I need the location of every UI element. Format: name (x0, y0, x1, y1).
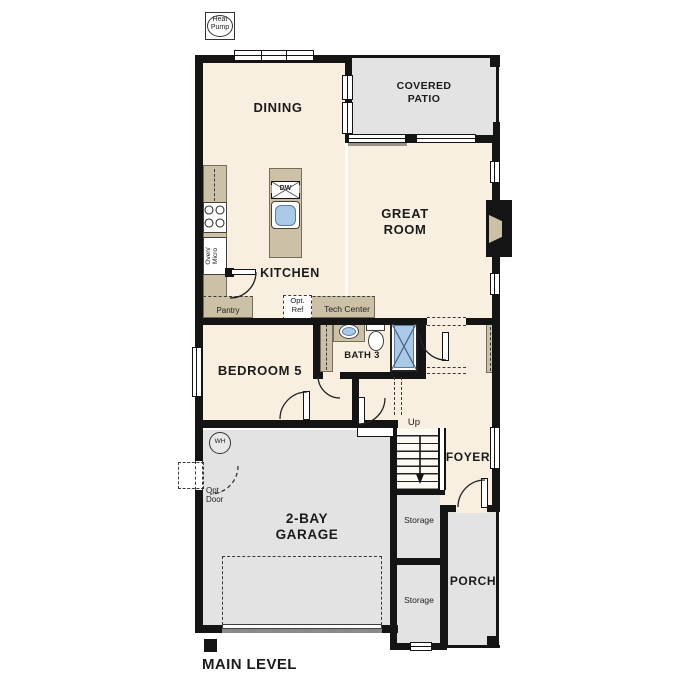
opt-door-label: Opt.Door (206, 486, 236, 504)
garage-label: 2-BAYGARAGE (267, 511, 347, 543)
garage-entry-step (357, 427, 394, 437)
great-room-label: GREATROOM (374, 206, 436, 237)
wall-garage-right (390, 422, 397, 650)
wall-bath-bottom-b (340, 372, 426, 379)
closet-opening-bottom (427, 367, 466, 374)
closet-opening-top (427, 317, 466, 326)
dining-label: DINING (238, 100, 318, 116)
opt-ref-label: Opt.Ref (283, 297, 312, 314)
foyer-closet-door (442, 332, 449, 361)
bath-3-label: BATH 3 (338, 350, 386, 361)
great-room-window-1 (490, 161, 500, 183)
storage-upper-label: Storage (400, 516, 438, 526)
stair-treads (397, 429, 438, 489)
garage-door-swing-zone (222, 556, 382, 625)
wall-bath-bottom-a (313, 372, 323, 379)
oven-micro-label: Oven/Micro (205, 238, 225, 274)
heat-pump-label: HeatPump (205, 16, 235, 32)
wall-closet-left (418, 318, 426, 379)
floor-plan: Oven/Micro DW Opt.Ref (0, 0, 687, 687)
kitchen-label: KITCHEN (250, 266, 330, 281)
dining-patio-window-2 (342, 102, 353, 134)
title-square (204, 639, 217, 652)
porch-post (487, 636, 498, 647)
storage-vent (410, 642, 432, 651)
garage-entry-door (358, 397, 365, 425)
opt-door-zone (178, 462, 204, 489)
bedroom-door (303, 391, 310, 420)
wall-stairs-bottom (390, 488, 445, 495)
slider-track (348, 143, 407, 146)
covered-patio-label: COVEREDPATIO (384, 80, 464, 105)
bedroom-window (192, 347, 202, 397)
dishwasher-label: DW (271, 185, 300, 193)
patio-post-se (493, 122, 500, 136)
foyer-label: FOYER (444, 450, 492, 464)
wall-left (195, 55, 203, 632)
wall-bedroom-right-upper (313, 320, 320, 375)
hall-cased-opening-l (394, 377, 395, 415)
pantry-label: Pantry (206, 306, 250, 315)
island-sink-basin (275, 205, 296, 226)
garage-door-track (222, 629, 382, 633)
great-patio-window (416, 134, 476, 143)
tech-center-label: Tech Center (318, 305, 376, 315)
dining-window (234, 50, 314, 61)
patio-slider-door (348, 134, 407, 143)
up-label: Up (401, 418, 427, 429)
shower-pan (394, 325, 414, 368)
patio-edge-top (345, 55, 497, 58)
hall-cased-opening-r (401, 377, 402, 415)
toilet-bowl (368, 331, 384, 351)
bath-sink-basin (342, 327, 356, 336)
storage-upper-floor (397, 495, 440, 558)
wall-storage-divider (390, 558, 445, 565)
dining-patio-window-1 (342, 75, 353, 100)
foyer-closet-dash (490, 322, 491, 371)
plan-title: MAIN LEVEL (202, 656, 342, 674)
window-mullion (261, 51, 262, 60)
wall-porch-left (440, 505, 448, 648)
front-door (481, 478, 488, 508)
window-mullion (286, 51, 287, 60)
water-heater-label: WH (209, 438, 231, 445)
great-room-window-2 (490, 273, 500, 295)
patio-post-ne (490, 55, 500, 67)
storage-lower-label: Storage (400, 596, 438, 606)
upper-cabinet-dash (214, 169, 215, 201)
bedroom-5-label: BEDROOM 5 (214, 363, 306, 379)
cooktop (203, 202, 227, 233)
porch-label: PORCH (448, 574, 498, 588)
linen-shelf-dash (326, 324, 327, 370)
